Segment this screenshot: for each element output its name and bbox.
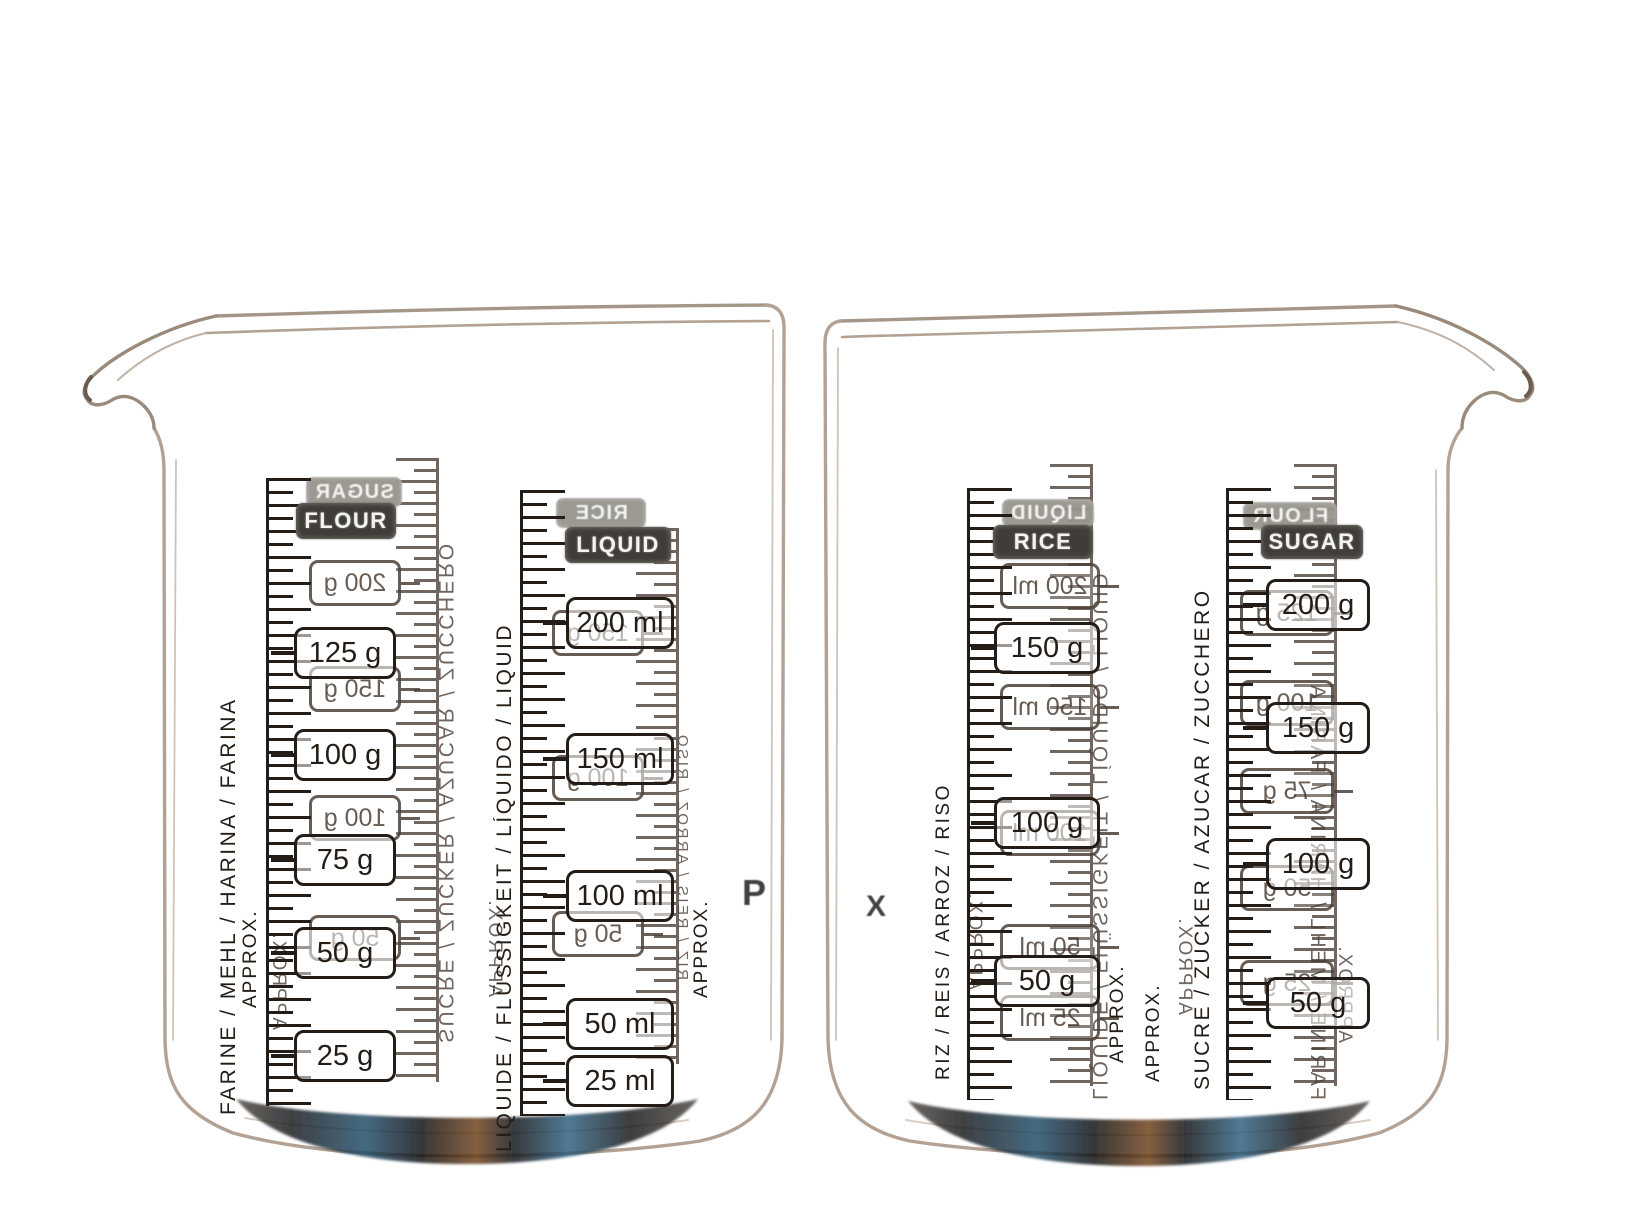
flour-scale-ruler	[266, 478, 315, 1106]
side-label: RIZ / REIS / ARROZ / RISO	[934, 775, 960, 1080]
sugar-badge: SUGAR	[1261, 525, 1363, 559]
liquid-badge: LIQUID	[565, 527, 671, 563]
measure-value: 50 g	[1266, 977, 1370, 1029]
measure-value: 50 ml	[566, 998, 674, 1050]
side-label: SUCRE / ZUCKER / AZUCAR / ZUCCHERO	[1192, 595, 1218, 1090]
side-label: FARINE / MEHL / HARINA / FARINA	[218, 675, 244, 1115]
measure-value-back: 200 g	[309, 560, 401, 606]
measure-value: 150 g	[1266, 702, 1370, 754]
approx-label: APPROX.	[1108, 948, 1134, 1063]
measure-value: 150 ml	[566, 733, 674, 785]
brand-fragment: X	[866, 890, 902, 960]
liquid-back-badge: LIQUID	[1002, 499, 1094, 527]
measure-value: 25 ml	[566, 1055, 674, 1107]
brand-fragment: P	[742, 872, 782, 952]
rice-badge: RICE	[993, 525, 1093, 559]
beaker-left-bottom-iridescence	[236, 1099, 698, 1164]
beaker-right-bottom-iridescence	[908, 1101, 1370, 1166]
measure-value: 100 g	[294, 729, 396, 781]
measure-value: 75 g	[294, 834, 396, 886]
measure-value: 125 g	[294, 627, 396, 679]
measure-value: 50 g	[994, 955, 1100, 1007]
measure-value: 200 g	[1266, 579, 1370, 631]
measure-value: 25 g	[294, 1030, 396, 1082]
rice-back-badge: RICE	[556, 498, 646, 528]
measure-value: 100 g	[1266, 838, 1370, 890]
side-label: LIQUIDE / FLÜSSIGKEIT / LÍQUIDO / LIQUID	[494, 552, 520, 1152]
beaker-right-outline	[825, 306, 1533, 1166]
measure-value: 50 g	[294, 927, 396, 979]
measure-value: 100 ml	[566, 870, 674, 922]
side-label-back: SUCRE / ZUCKER / AZUCAR / ZUCCHERO	[430, 468, 456, 1043]
approx-label: APPROX.	[241, 903, 267, 1008]
rice-scale-ruler	[967, 488, 1014, 1100]
approx-label: APPROX.	[692, 898, 718, 998]
photo-canvas: SUGAR FLOUR 125 g 100 g 75 g 50 g 25 g 2…	[0, 0, 1637, 1228]
measure-value: 200 ml	[566, 597, 674, 649]
flour-badge: FLOUR	[296, 503, 396, 539]
glass-beakers-drawing	[0, 0, 1637, 1228]
measure-value: 150 g	[994, 622, 1100, 674]
approx-label: APPROX.	[1144, 972, 1170, 1082]
measure-value: 100 g	[994, 797, 1100, 849]
